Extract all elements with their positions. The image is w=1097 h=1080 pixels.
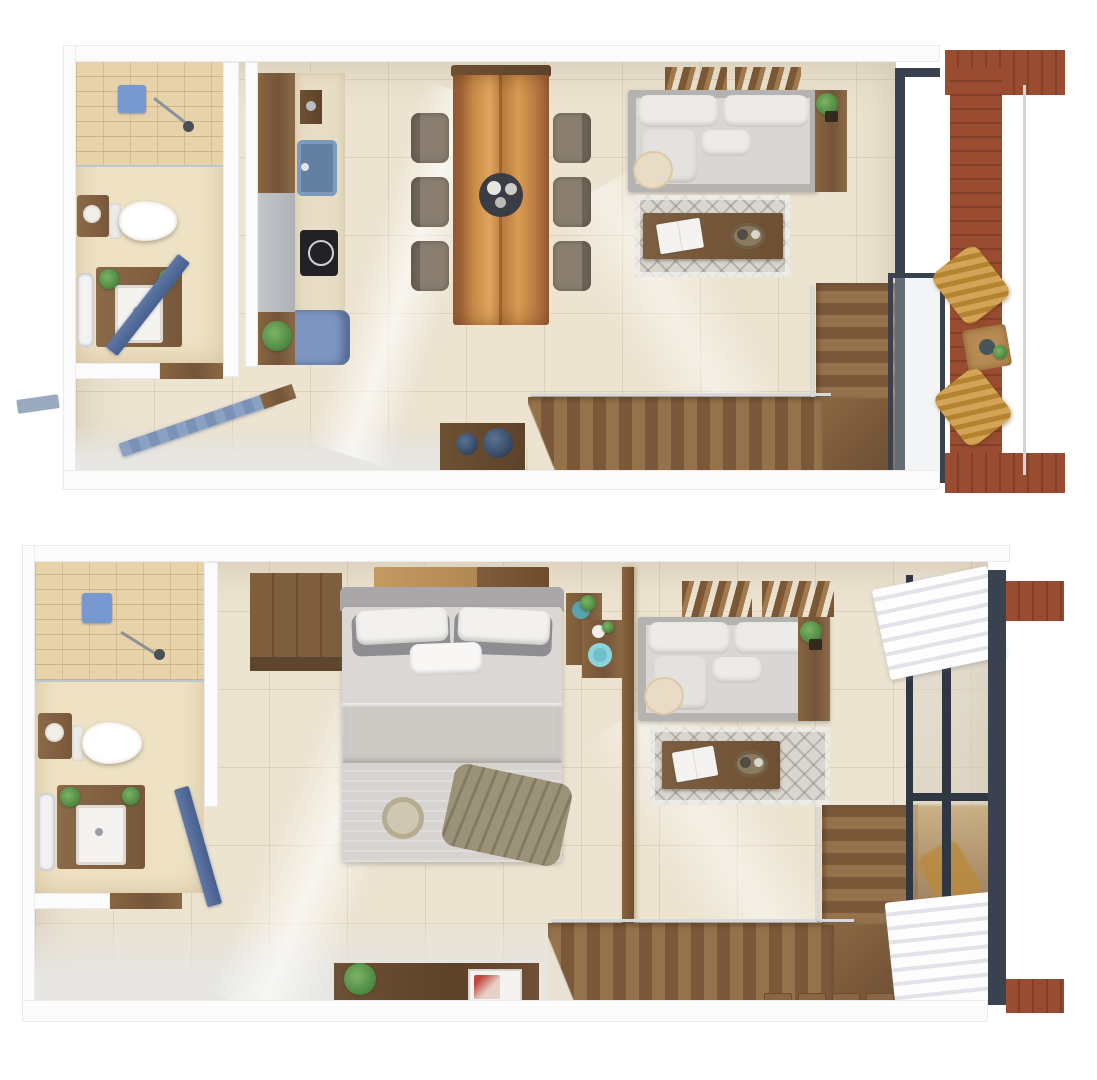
vanity-plant [122, 787, 140, 805]
bathroom-right-wall [223, 62, 239, 377]
outer-wall-top [63, 45, 940, 62]
navy-bowl [456, 433, 478, 455]
floor-plan-level-1 [63, 45, 940, 490]
kitchen-shelf-bowl [306, 101, 316, 111]
plate [487, 181, 501, 195]
bed-sheet-band [342, 703, 562, 763]
glass-divider-frame [622, 567, 634, 929]
round-woven-tray [382, 797, 424, 839]
glass-wall-outer-frame [988, 570, 1006, 1005]
decor-tray [731, 223, 765, 249]
bathroom-threshold-shelf [160, 363, 223, 379]
tray-bowl [751, 230, 760, 239]
stairs-handrail [817, 807, 820, 921]
deck-bottom-band [945, 453, 1065, 493]
outer-wall-left [63, 45, 76, 490]
side-basin [83, 205, 101, 223]
outer-wall-bottom [22, 1000, 988, 1022]
sofa-back-cushion [648, 622, 730, 654]
wardrobe-front-edge [250, 657, 342, 671]
ceiling-slats [682, 581, 752, 617]
wicker-lounge-chair [931, 365, 1015, 450]
bathroom-right-wall [204, 562, 218, 807]
shower-area [35, 562, 204, 680]
tray-bowl [737, 229, 748, 240]
nightstand-plant [580, 595, 596, 611]
towel-rail [38, 793, 55, 871]
vase-sprig [602, 621, 614, 633]
bathroom-bottom-wall [22, 893, 110, 909]
under-stair-console [440, 423, 525, 473]
kitchen-back-wall [245, 62, 258, 367]
shower-fixture [82, 593, 112, 623]
shower-head [183, 121, 194, 132]
white-pillow [355, 607, 449, 646]
outer-wall-top [22, 545, 1010, 562]
sofa-back-cushion [723, 95, 809, 127]
kitchen-gray-counter [258, 193, 295, 312]
shower-area [76, 62, 223, 167]
side-basin [45, 723, 64, 742]
tray-bowl [754, 758, 763, 767]
dining-chair [553, 177, 591, 227]
dining-chair [411, 241, 449, 291]
kitchen-tall-cabinet [258, 73, 295, 193]
dining-chair [553, 241, 591, 291]
window-transom-bar [906, 793, 990, 801]
dining-chair [411, 177, 449, 227]
decor-tray [734, 751, 768, 777]
outer-wall-left [22, 545, 35, 1022]
dining-chair [553, 113, 591, 163]
tv-screen-image [474, 975, 500, 999]
shower-head [154, 649, 165, 660]
vanity-plant [60, 787, 80, 807]
vanity-plant [99, 269, 119, 289]
stairs-handrail [531, 393, 831, 396]
kitchen-plant [262, 321, 292, 351]
sofa-seat-cushion [712, 657, 762, 683]
tray-bowl [740, 757, 751, 768]
floor-plan-level-2 [22, 545, 1010, 1022]
ceiling-slats [762, 581, 834, 617]
roman-curtain-bottom [885, 892, 1002, 1010]
floor-plan-canvas [0, 0, 1097, 1080]
plate [495, 197, 506, 208]
stairs-start-diagonal [548, 923, 614, 1002]
shower-fixture [118, 85, 146, 113]
tv-console-plant [344, 963, 376, 995]
stairs-start-diagonal [528, 397, 598, 477]
plate [505, 183, 517, 195]
balcony-plant [993, 345, 1007, 359]
sofa-back-cushion [638, 95, 718, 127]
exterior-step [16, 394, 60, 414]
kitchen-blue-cabinet [295, 310, 350, 365]
exterior-deck-ledge-bottom [1006, 979, 1064, 1013]
navy-bowl [483, 428, 513, 458]
bathroom-bottom-wall [63, 363, 160, 379]
cooktop-burner [308, 240, 334, 266]
dining-centerpiece [479, 173, 523, 217]
outer-wall-bottom [63, 470, 940, 490]
white-pillow [457, 607, 551, 646]
dining-chair [411, 113, 449, 163]
teal-plate [588, 643, 612, 667]
stairs-upper-run [816, 283, 895, 399]
kitchen-faucet [301, 163, 309, 171]
plant-pot [825, 111, 838, 122]
sink-drain [95, 828, 103, 836]
shower-glass-line [76, 165, 223, 167]
stairs-handrail [552, 919, 854, 922]
towel-rail [77, 273, 94, 347]
exterior-deck-ledge-top [1006, 581, 1064, 621]
stairs-corner-landing [823, 397, 895, 477]
balcony-railing [1023, 85, 1026, 475]
sofa-seat-cushion [701, 130, 751, 156]
level-1-balcony [895, 45, 1065, 495]
bathroom-threshold-shelf [110, 893, 182, 909]
shower-glass-line [35, 680, 204, 682]
accent-pillow [409, 642, 482, 676]
plant-pot [809, 639, 822, 650]
stairs-handrail [811, 285, 814, 397]
